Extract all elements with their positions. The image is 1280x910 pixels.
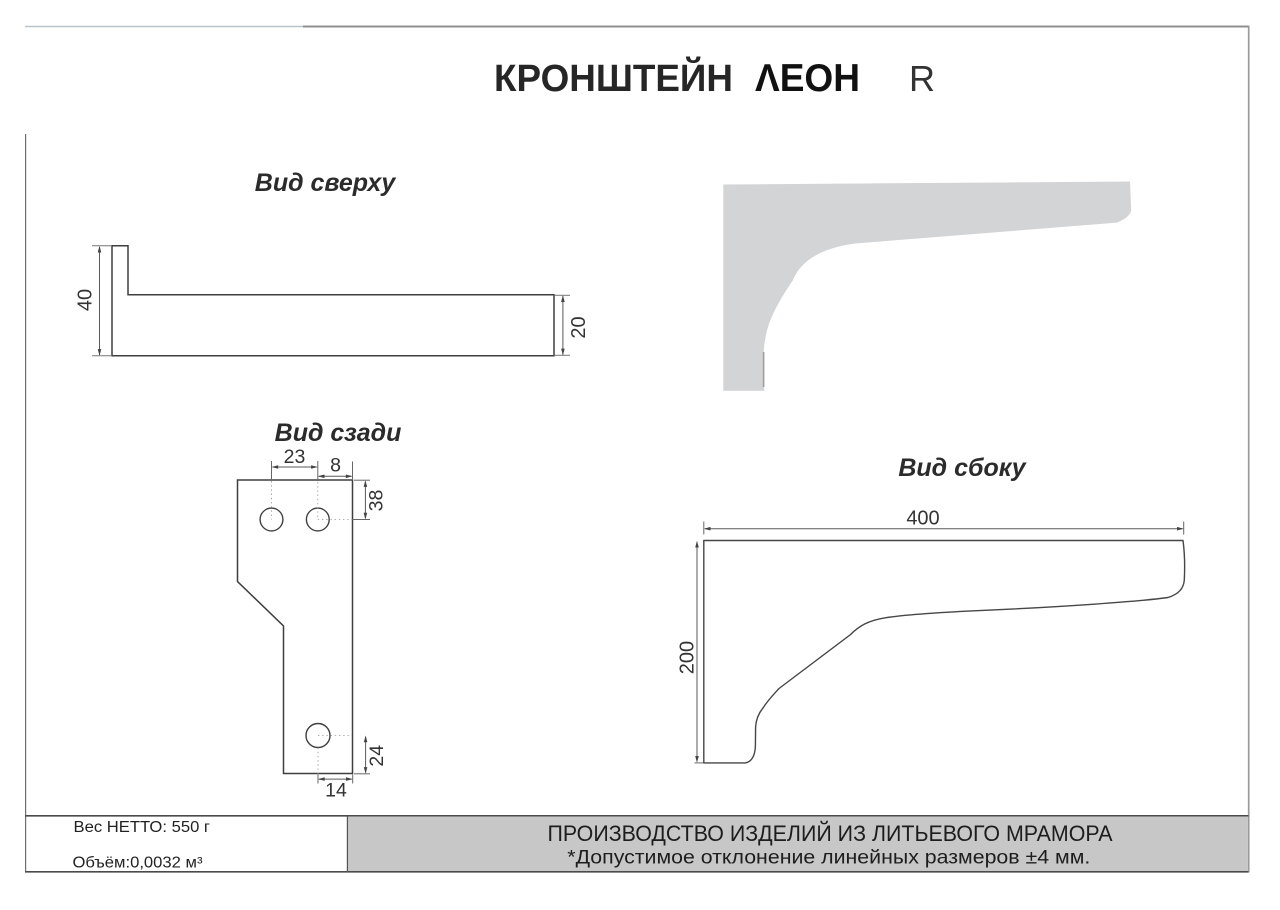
svg-text:23: 23 [284,446,306,468]
svg-text:200: 200 [677,641,699,674]
svg-text:КРОНШТЕЙН: КРОНШТЕЙН [494,55,733,100]
svg-text:Вид сбоку: Вид сбоку [898,454,1026,482]
svg-text:Вид сверху: Вид сверху [255,169,397,197]
svg-text:8: 8 [330,454,341,476]
svg-text:ΛΕΟΗ: ΛΕΟΗ [755,57,860,100]
svg-text:Вид сзади: Вид сзади [275,419,402,447]
svg-text:20: 20 [568,316,590,338]
svg-text:Объём:0,0032 м³: Объём:0,0032 м³ [73,855,203,872]
svg-text:14: 14 [325,780,347,802]
svg-text:*Допустимое отклонение линейны: *Допустимое отклонение линейных размеров… [567,847,1090,869]
svg-text:R: R [909,58,935,99]
svg-text:Вес НЕТТО: 550 г: Вес НЕТТО: 550 г [74,819,211,836]
svg-text:400: 400 [906,508,939,530]
svg-text:24: 24 [366,745,388,767]
svg-text:40: 40 [75,289,97,311]
svg-text:38: 38 [366,490,388,512]
svg-text:ПРОИЗВОДСТВО ИЗДЕЛИЙ ИЗ ЛИТЬЕВ: ПРОИЗВОДСТВО ИЗДЕЛИЙ ИЗ ЛИТЬЕВОГО МРАМОР… [548,821,1113,846]
